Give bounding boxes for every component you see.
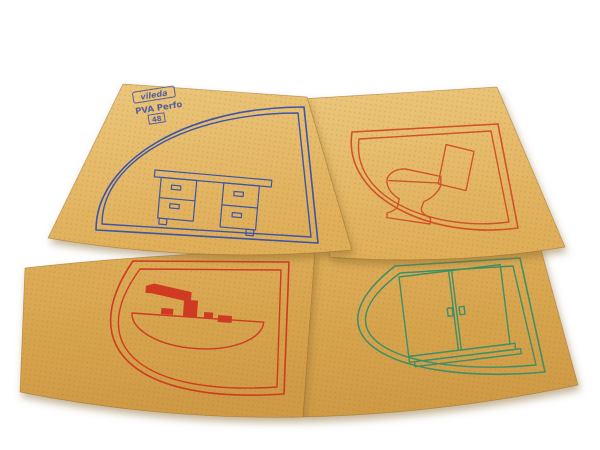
cloth-desk: vileda PVA Perfo 48 bbox=[48, 84, 352, 255]
cloth-cabinet bbox=[303, 245, 578, 417]
product-photo: vileda PVA Perfo 48 bbox=[0, 0, 600, 450]
tap-handle bbox=[161, 308, 173, 315]
cloth-scene: vileda PVA Perfo 48 bbox=[0, 0, 600, 450]
tap-handle bbox=[204, 312, 213, 319]
size-code: 48 bbox=[151, 115, 162, 124]
cloth-washbasin bbox=[20, 250, 315, 417]
tap-handle bbox=[218, 315, 232, 323]
